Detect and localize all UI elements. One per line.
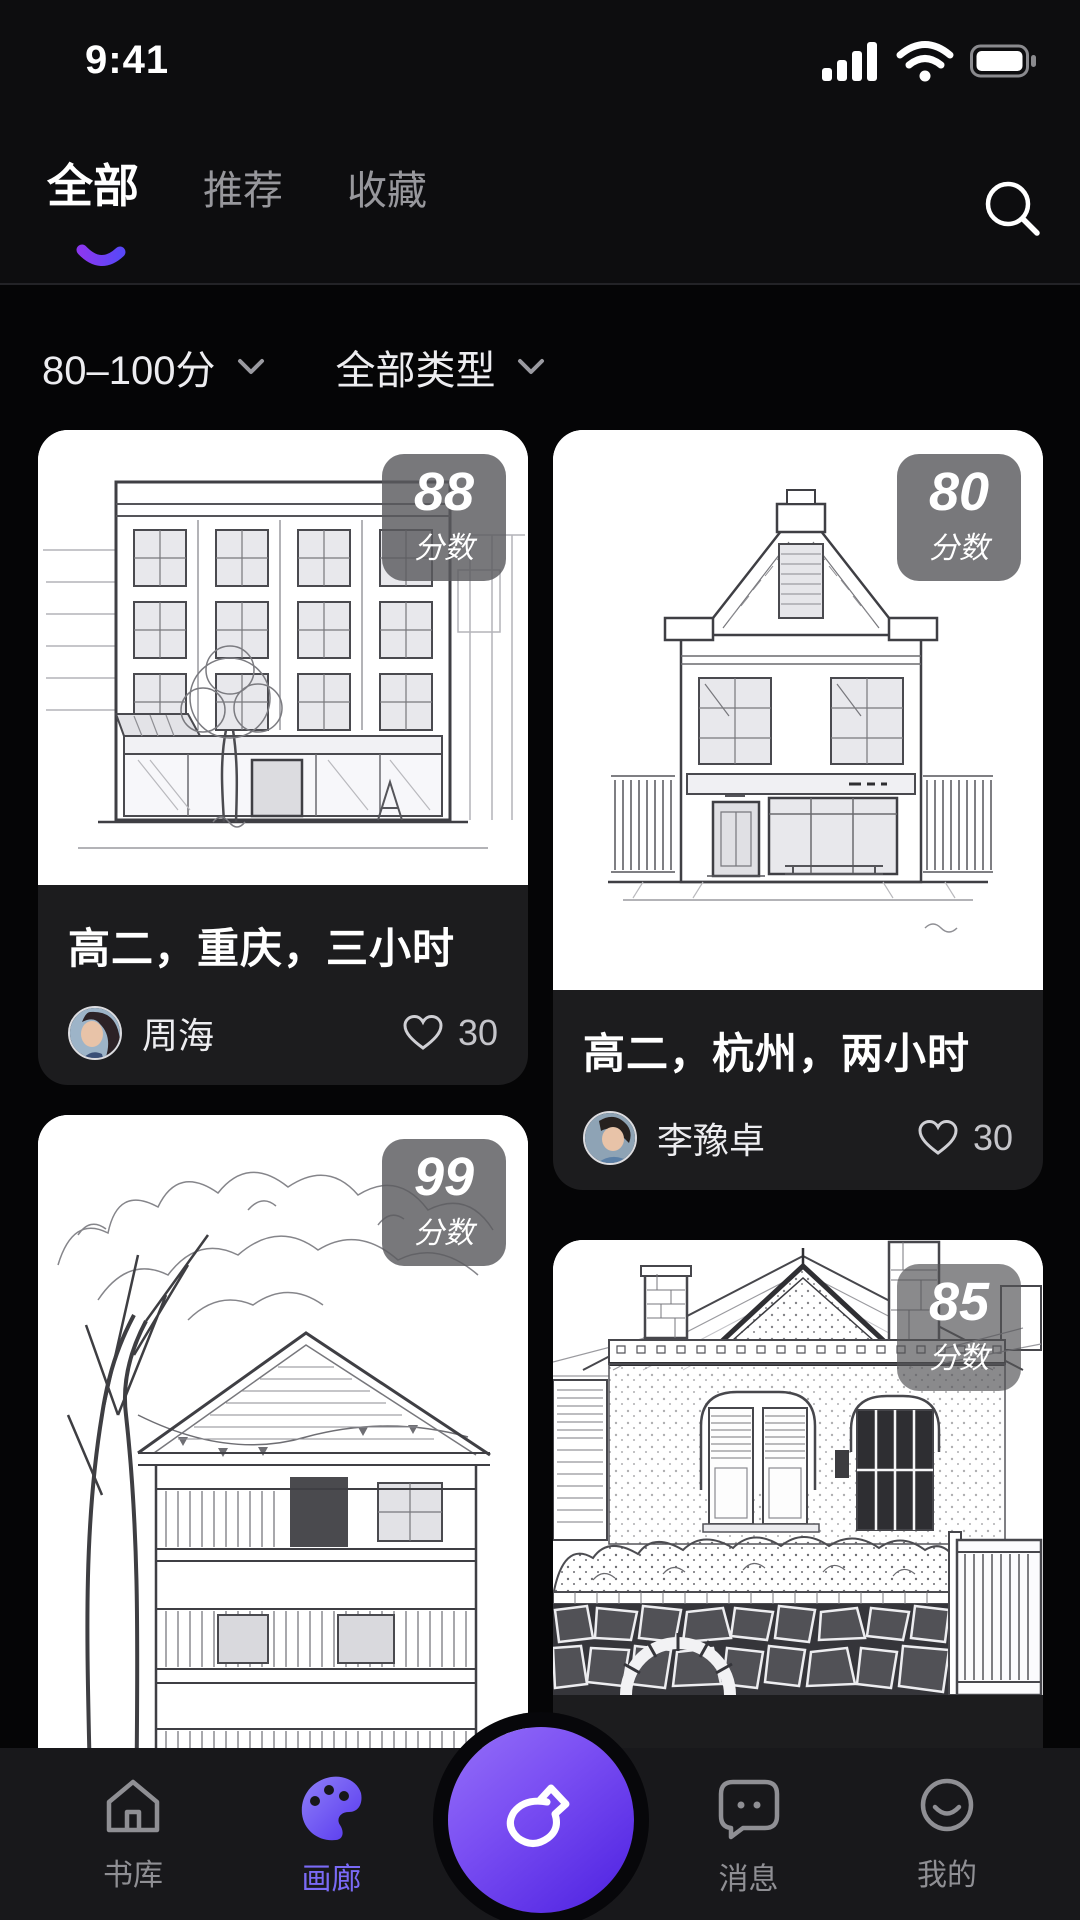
nav-label: 画廊 — [302, 1854, 362, 1898]
chat-bubble-icon — [717, 1774, 781, 1842]
tab-recommended[interactable]: 推荐 — [203, 158, 283, 222]
score-label: 分数 — [919, 523, 999, 567]
artwork-card[interactable]: 80 分数 高二，杭州，两小时 李豫卓 — [553, 430, 1043, 1190]
heart-icon — [917, 1119, 959, 1157]
filter-row: 80–100分 全部类型 — [42, 338, 587, 396]
nav-item-gallery[interactable]: 画廊 — [247, 1774, 417, 1898]
artwork-card[interactable]: 88 分数 高二，重庆，三小时 周海 — [38, 430, 528, 1085]
card-title: 高二，重庆，三小时 — [68, 915, 498, 976]
nav-item-library[interactable]: 书库 — [48, 1774, 218, 1894]
header: 9:41 — [0, 0, 1080, 285]
create-painting-button[interactable] — [448, 1727, 634, 1913]
nav-label: 我的 — [917, 1850, 977, 1894]
likes-count: 30 — [973, 1117, 1013, 1159]
score-badge: 85 分数 — [897, 1264, 1021, 1391]
chevron-down-icon — [237, 358, 265, 376]
like-button[interactable]: 30 — [917, 1117, 1013, 1159]
type-filter-label: 全部类型 — [335, 338, 495, 396]
signal-icon — [822, 40, 880, 82]
card-footer: 高二，重庆，三小时 周海 30 — [38, 885, 528, 1060]
chevron-down-icon — [517, 358, 545, 376]
author-name: 周海 — [142, 1007, 214, 1059]
nav-item-messages[interactable]: 消息 — [664, 1774, 834, 1898]
status-time: 9:41 — [85, 38, 169, 83]
battery-icon — [970, 43, 1038, 79]
home-icon — [101, 1774, 165, 1838]
type-filter[interactable]: 全部类型 — [335, 338, 545, 396]
search-icon — [980, 176, 1046, 242]
score-badge: 88 分数 — [382, 454, 506, 581]
score-value: 88 — [404, 464, 484, 521]
smiley-icon — [915, 1774, 979, 1838]
nav-item-profile[interactable]: 我的 — [862, 1774, 1032, 1894]
paint-brush-icon — [495, 1774, 587, 1866]
tab-favorites[interactable]: 收藏 — [347, 158, 427, 222]
heart-icon — [402, 1014, 444, 1052]
score-value: 80 — [919, 464, 999, 521]
search-button[interactable] — [980, 176, 1046, 242]
avatar — [583, 1111, 637, 1165]
score-value: 85 — [919, 1274, 999, 1331]
tab-bar: 全部 推荐 收藏 — [47, 150, 427, 222]
palette-icon — [298, 1774, 366, 1842]
score-label: 分数 — [404, 1208, 484, 1252]
card-footer: 高二，杭州，两小时 李豫卓 30 — [553, 990, 1043, 1165]
score-filter-label: 80–100分 — [42, 338, 215, 396]
author-row: 李豫卓 30 — [583, 1111, 1013, 1165]
app-screen: 9:41 — [0, 0, 1080, 1920]
score-badge: 80 分数 — [897, 454, 1021, 581]
tab-all[interactable]: 全部 — [47, 150, 139, 222]
nav-label: 消息 — [719, 1854, 779, 1898]
nav-label: 书库 — [103, 1850, 163, 1894]
status-icons — [822, 40, 1038, 82]
wifi-icon — [896, 40, 954, 82]
score-badge: 99 分数 — [382, 1139, 506, 1266]
avatar — [68, 1006, 122, 1060]
score-filter[interactable]: 80–100分 — [42, 338, 265, 396]
card-title: 高二，杭州，两小时 — [583, 1020, 1013, 1081]
like-button[interactable]: 30 — [402, 1012, 498, 1054]
active-tab-indicator — [76, 244, 126, 270]
score-value: 99 — [404, 1149, 484, 1206]
likes-count: 30 — [458, 1012, 498, 1054]
author-name: 李豫卓 — [657, 1112, 765, 1164]
score-label: 分数 — [919, 1333, 999, 1377]
author-row: 周海 30 — [68, 1006, 498, 1060]
score-label: 分数 — [404, 523, 484, 567]
